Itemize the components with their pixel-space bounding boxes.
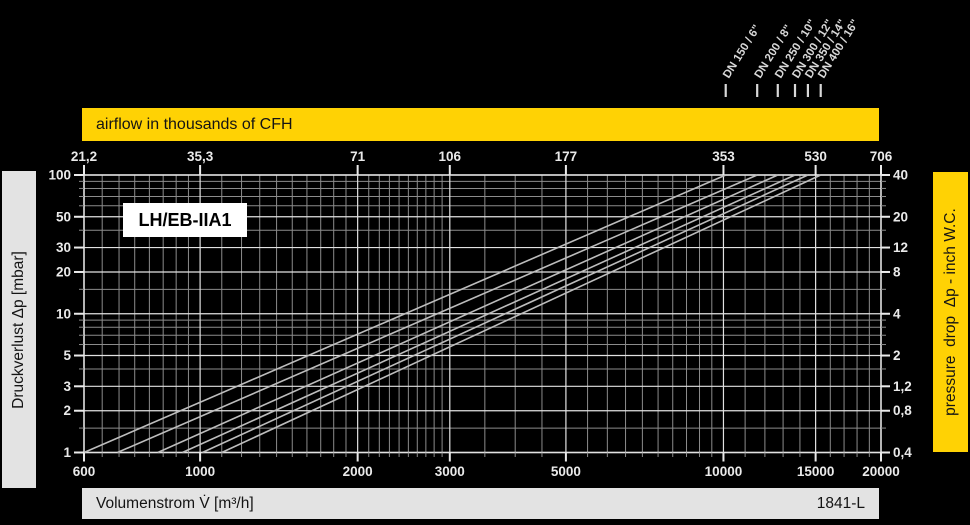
y-axis-left-tick-label: 100 [48, 168, 71, 183]
model-label-box: LH/EB-IIA1 [123, 203, 247, 237]
top-axis-tick-label: 353 [712, 149, 735, 164]
top-axis-tick-label: 706 [870, 149, 893, 164]
y-axis-right-tick-label: 20 [893, 209, 908, 224]
model-label: LH/EB-IIA1 [138, 210, 231, 231]
y-axis-right-tick-label: 0,8 [893, 403, 912, 418]
y-axis-right-tick-label: 1,2 [893, 379, 912, 394]
x-axis-tick-label: 600 [73, 464, 96, 479]
x-axis-tick-label: 10000 [705, 464, 743, 479]
top-axis-tick-label: 177 [555, 149, 578, 164]
top-axis-tick-label: 71 [350, 149, 366, 164]
x-axis-tick-label: 2000 [343, 464, 373, 479]
x-axis-tick-label: 20000 [862, 464, 900, 479]
y-axis-right-tick-label: 2 [893, 348, 901, 363]
top-axis-tick-label: 106 [439, 149, 462, 164]
y-axis-right-tick-label: 4 [893, 306, 901, 321]
x-axis-tick-label: 3000 [435, 464, 465, 479]
y-axis-left-tick-label: 5 [63, 348, 71, 363]
bottom-axis-title: Volumenstrom V̇ [m³/h] [82, 495, 254, 513]
right-axis-title: pressure drop Δp - inch W.C. [942, 208, 960, 416]
y-axis-right-tick-label: 40 [893, 168, 908, 183]
y-axis-right-tick-label: 0,4 [893, 445, 912, 460]
left-axis-title-bar: Druckverlust Δp [mbar] [2, 171, 36, 488]
airflow-banner: airflow in thousands of CFH [82, 108, 879, 141]
right-axis-title-bar: pressure drop Δp - inch W.C. [933, 172, 968, 452]
y-axis-right-tick-label: 8 [893, 264, 901, 279]
airflow-banner-label: airflow in thousands of CFH [82, 116, 293, 134]
bottom-axis-title-bar: Volumenstrom V̇ [m³/h] 1841-L [82, 488, 879, 519]
y-axis-left-tick-label: 50 [56, 209, 71, 224]
left-axis-title: Druckverlust Δp [mbar] [10, 251, 28, 409]
top-axis-tick-label: 21,2 [71, 149, 97, 164]
chart-plot-area: 600100020003000500010000150002000021,235… [0, 0, 970, 525]
top-axis-tick-label: 530 [804, 149, 827, 164]
x-axis-tick-label: 15000 [797, 464, 835, 479]
x-axis-tick-label: 1000 [185, 464, 215, 479]
top-axis-tick-label: 35,3 [187, 149, 214, 164]
y-axis-left-tick-label: 30 [56, 240, 71, 255]
y-axis-left-tick-label: 1 [63, 445, 71, 460]
y-axis-left-tick-label: 20 [56, 264, 71, 279]
x-axis-tick-label: 5000 [551, 464, 581, 479]
y-axis-right-tick-label: 12 [893, 240, 908, 255]
y-axis-left-tick-label: 2 [63, 403, 71, 418]
document-reference: 1841-L [817, 495, 879, 513]
y-axis-left-tick-label: 3 [63, 379, 71, 394]
flame-arrester-pressure-drop-chart: 600100020003000500010000150002000021,235… [0, 0, 970, 525]
y-axis-left-tick-label: 10 [56, 306, 71, 321]
